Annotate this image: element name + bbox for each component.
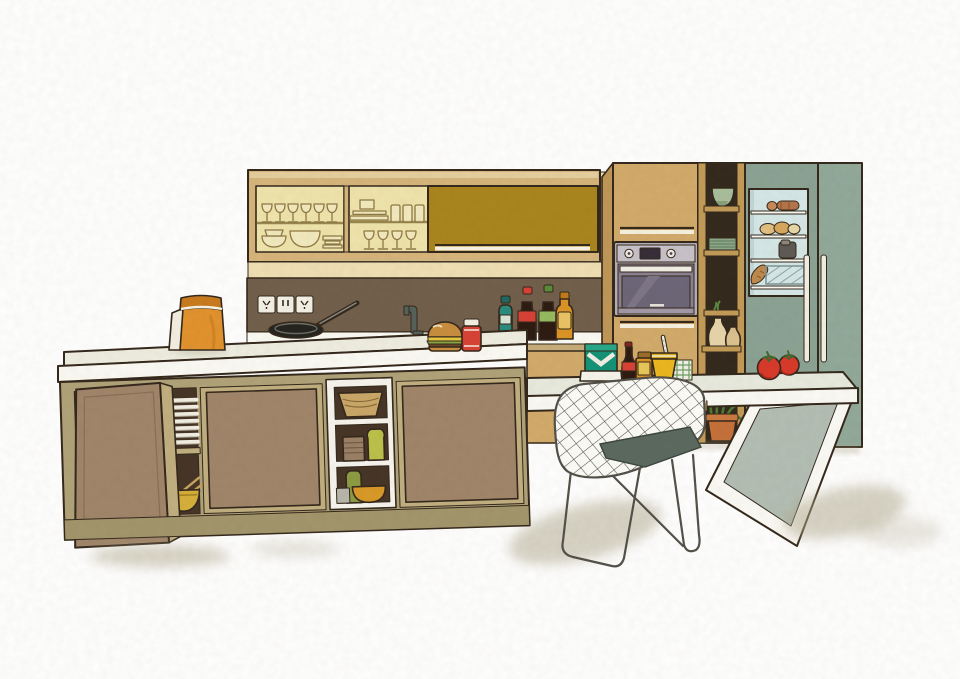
kitchen-scene: Hand-drawn watercolor illustration of a … bbox=[0, 0, 960, 679]
kitchen-illustration bbox=[0, 0, 960, 679]
paper-texture-overlay bbox=[0, 0, 960, 679]
